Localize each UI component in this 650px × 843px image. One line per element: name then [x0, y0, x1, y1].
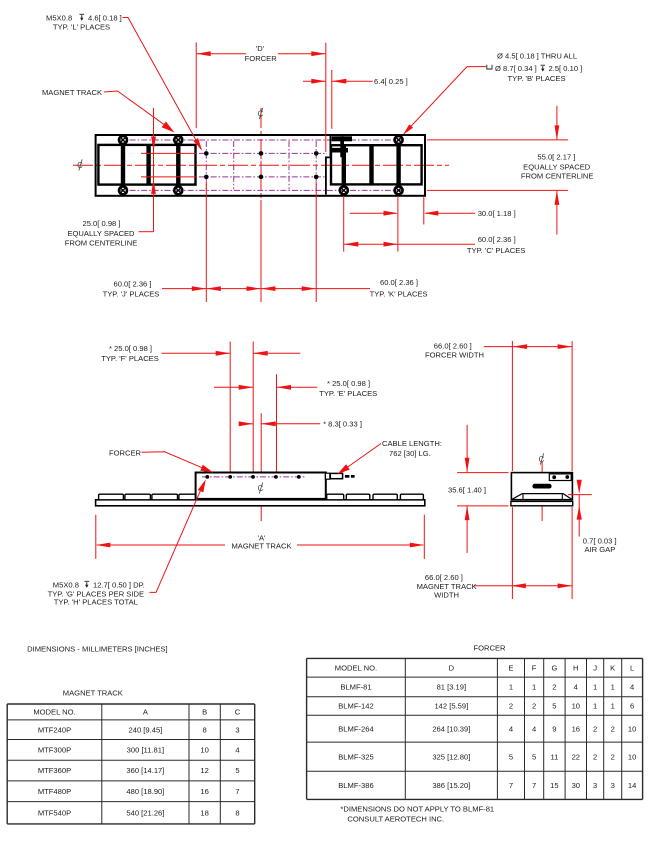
svg-text:22: 22: [572, 752, 580, 761]
svg-text:14: 14: [628, 781, 636, 790]
svg-text:4: 4: [574, 683, 578, 692]
svg-text:L: L: [630, 663, 634, 672]
svg-text:*DIMENSIONS DO NOT APPLY TO BL: *DIMENSIONS DO NOT APPLY TO BLMF-81: [340, 805, 494, 814]
svg-text:CABLE LENGTH:: CABLE LENGTH:: [382, 439, 442, 448]
svg-text:5: 5: [532, 752, 536, 761]
svg-text:MTF360P: MTF360P: [38, 766, 71, 775]
svg-text:TYP. 'C' PLACES: TYP. 'C' PLACES: [467, 246, 525, 255]
svg-text:MODEL NO.: MODEL NO.: [335, 663, 377, 672]
svg-text:BLMF-264: BLMF-264: [338, 724, 373, 733]
svg-text:AIR GAP: AIR GAP: [585, 545, 616, 554]
svg-text:EQUALLY SPACED: EQUALLY SPACED: [67, 229, 135, 238]
svg-text:B: B: [202, 708, 207, 717]
svg-text:2: 2: [532, 702, 536, 711]
svg-text:1: 1: [593, 702, 597, 711]
svg-text:1: 1: [611, 683, 615, 692]
svg-text:5: 5: [552, 702, 556, 711]
svg-text:18: 18: [200, 808, 208, 817]
svg-text:325 [12.80]: 325 [12.80]: [432, 752, 470, 761]
svg-text:DIMENSIONS - MILLIMETERS [INCH: DIMENSIONS - MILLIMETERS [INCHES]: [27, 644, 168, 653]
svg-text:8: 8: [235, 808, 239, 817]
svg-text:60.0[ 2.36 ]: 60.0[ 2.36 ]: [114, 279, 152, 288]
svg-text:MAGNET TRACK: MAGNET TRACK: [231, 541, 291, 550]
svg-text:3: 3: [611, 781, 615, 790]
svg-text:8: 8: [203, 725, 207, 734]
svg-text:FORCER: FORCER: [473, 644, 506, 653]
svg-text:BLMF-81: BLMF-81: [340, 683, 371, 692]
svg-text:1: 1: [611, 702, 615, 711]
svg-text:10: 10: [200, 745, 208, 754]
svg-text:H: H: [573, 663, 578, 672]
svg-text:66.0[ 2.60 ]: 66.0[ 2.60 ]: [425, 573, 463, 582]
svg-text:81 [3.19]: 81 [3.19]: [437, 683, 467, 692]
svg-text:9: 9: [552, 724, 556, 733]
svg-text:7: 7: [235, 787, 239, 796]
svg-text:60.0[ 2.36 ]: 60.0[ 2.36 ]: [478, 235, 516, 244]
svg-text:3: 3: [235, 725, 239, 734]
svg-text:6.4[ 0.25 ]: 6.4[ 0.25 ]: [374, 77, 408, 86]
svg-text:1: 1: [593, 683, 597, 692]
svg-text:6: 6: [630, 702, 634, 711]
svg-text:G: G: [551, 663, 557, 672]
svg-text:30: 30: [572, 781, 580, 790]
svg-text:1: 1: [532, 683, 536, 692]
svg-text:* 8.3[ 0.33 ]: * 8.3[ 0.33 ]: [323, 419, 362, 428]
svg-text:16: 16: [200, 787, 208, 796]
svg-text:4: 4: [235, 745, 239, 754]
svg-text:K: K: [610, 663, 615, 672]
svg-text:12.7[ 0.50 ] DP.: 12.7[ 0.50 ] DP.: [93, 581, 145, 590]
svg-text:MTF480P: MTF480P: [38, 787, 71, 796]
svg-text:BLMF-386: BLMF-386: [338, 781, 373, 790]
svg-text:30.0[ 1.18 ]: 30.0[ 1.18 ]: [478, 209, 516, 218]
svg-text:12: 12: [200, 766, 208, 775]
svg-text:300 [11.81]: 300 [11.81]: [127, 745, 164, 754]
svg-text:2: 2: [593, 752, 597, 761]
svg-text:2.5[ 0.10 ]: 2.5[ 0.10 ]: [549, 64, 583, 73]
svg-text:TYP. 'F' PLACES: TYP. 'F' PLACES: [101, 354, 159, 363]
svg-text:7: 7: [532, 781, 536, 790]
svg-text:TYP. 'E' PLACES: TYP. 'E' PLACES: [319, 389, 377, 398]
svg-text:5: 5: [509, 752, 513, 761]
svg-text:7: 7: [509, 781, 513, 790]
svg-text:* 25.0[ 0.98 ]: * 25.0[ 0.98 ]: [327, 379, 370, 388]
svg-text:FROM CENTERLINE: FROM CENTERLINE: [65, 239, 138, 248]
svg-text:MAGNET TRACK: MAGNET TRACK: [42, 88, 102, 97]
svg-text:762 [30] LG.: 762 [30] LG.: [389, 449, 431, 458]
svg-text:4: 4: [630, 683, 634, 692]
svg-text:3: 3: [593, 781, 597, 790]
svg-text:11: 11: [550, 752, 558, 761]
svg-text:* 25.0[ 0.98 ]: * 25.0[ 0.98 ]: [109, 344, 152, 353]
svg-text:480 [18.90]: 480 [18.90]: [126, 787, 164, 796]
svg-text:MODEL NO.: MODEL NO.: [33, 708, 75, 717]
svg-text:10: 10: [572, 702, 580, 711]
svg-text:TYP. 'K' PLACES: TYP. 'K' PLACES: [370, 289, 428, 298]
svg-text:142 [5.59]: 142 [5.59]: [434, 702, 468, 711]
svg-text:WIDTH: WIDTH: [434, 591, 459, 600]
svg-text:25.0[ 0.98 ]: 25.0[ 0.98 ]: [83, 219, 121, 228]
svg-text:2: 2: [611, 752, 615, 761]
svg-text:MTF540P: MTF540P: [38, 808, 71, 817]
svg-text:E: E: [508, 663, 513, 672]
svg-text:2: 2: [593, 724, 597, 733]
svg-text:10: 10: [628, 752, 636, 761]
svg-text:Ø 4.5[ 0.18 ] THRU ALL: Ø 4.5[ 0.18 ] THRU ALL: [497, 51, 577, 60]
svg-text:Ø 8.7[ 0.34 ]: Ø 8.7[ 0.34 ]: [495, 64, 537, 73]
svg-text:4.6[ 0.18 ]: 4.6[ 0.18 ]: [88, 14, 122, 23]
svg-text:386 [15.20]: 386 [15.20]: [432, 781, 470, 790]
svg-text:60.0[ 2.36 ]: 60.0[ 2.36 ]: [380, 278, 418, 287]
svg-text:MTF300P: MTF300P: [38, 745, 71, 754]
svg-text:TYP. 'B' PLACES: TYP. 'B' PLACES: [508, 74, 566, 83]
svg-text:15: 15: [550, 781, 558, 790]
svg-text:F: F: [532, 663, 537, 672]
svg-text:'D': 'D': [256, 44, 265, 53]
svg-text:C: C: [235, 708, 241, 717]
svg-text:540 [21.26]: 540 [21.26]: [126, 808, 164, 817]
svg-text:240 [9.45]: 240 [9.45]: [129, 725, 163, 734]
svg-text:16: 16: [572, 724, 580, 733]
svg-text:5: 5: [235, 766, 239, 775]
svg-text:360 [14.17]: 360 [14.17]: [126, 766, 164, 775]
svg-text:2: 2: [552, 683, 556, 692]
svg-text:TYP. 'J' PLACES: TYP. 'J' PLACES: [103, 289, 160, 298]
svg-text:M5X0.8: M5X0.8: [46, 14, 72, 23]
svg-text:BLMF-142: BLMF-142: [338, 702, 373, 711]
svg-text:4: 4: [509, 724, 513, 733]
svg-text:55.0[ 2.17 ]: 55.0[ 2.17 ]: [537, 152, 575, 161]
svg-text:FORCER WIDTH: FORCER WIDTH: [425, 350, 484, 359]
svg-text:10: 10: [628, 724, 636, 733]
svg-text:TYP. 'L' PLACES: TYP. 'L' PLACES: [53, 23, 110, 32]
svg-text:1: 1: [509, 683, 513, 692]
svg-text:264 [10.39]: 264 [10.39]: [432, 724, 470, 733]
svg-text:FORCER: FORCER: [245, 54, 278, 63]
svg-text:EQUALLY SPACED: EQUALLY SPACED: [523, 162, 591, 171]
svg-text:TYP. 'H' PLACES TOTAL: TYP. 'H' PLACES TOTAL: [54, 598, 138, 607]
svg-text:D: D: [449, 663, 455, 672]
svg-text:FROM CENTERLINE: FROM CENTERLINE: [521, 171, 594, 180]
svg-text:BLMF-325: BLMF-325: [338, 752, 373, 761]
svg-text:4: 4: [532, 724, 536, 733]
svg-text:MTF240P: MTF240P: [38, 725, 71, 734]
svg-text:66.0[ 2.60 ]: 66.0[ 2.60 ]: [434, 342, 472, 351]
svg-text:MAGNET TRACK: MAGNET TRACK: [63, 689, 123, 698]
svg-text:M5X0.8: M5X0.8: [53, 581, 79, 590]
svg-text:2: 2: [611, 724, 615, 733]
svg-text:CONSULT AEROTECH INC.: CONSULT AEROTECH INC.: [347, 814, 444, 823]
svg-text:2: 2: [509, 702, 513, 711]
svg-text:J: J: [593, 663, 597, 672]
svg-text:35.6[ 1.40 ]: 35.6[ 1.40 ]: [448, 486, 486, 495]
svg-text:FORCER: FORCER: [109, 448, 142, 457]
